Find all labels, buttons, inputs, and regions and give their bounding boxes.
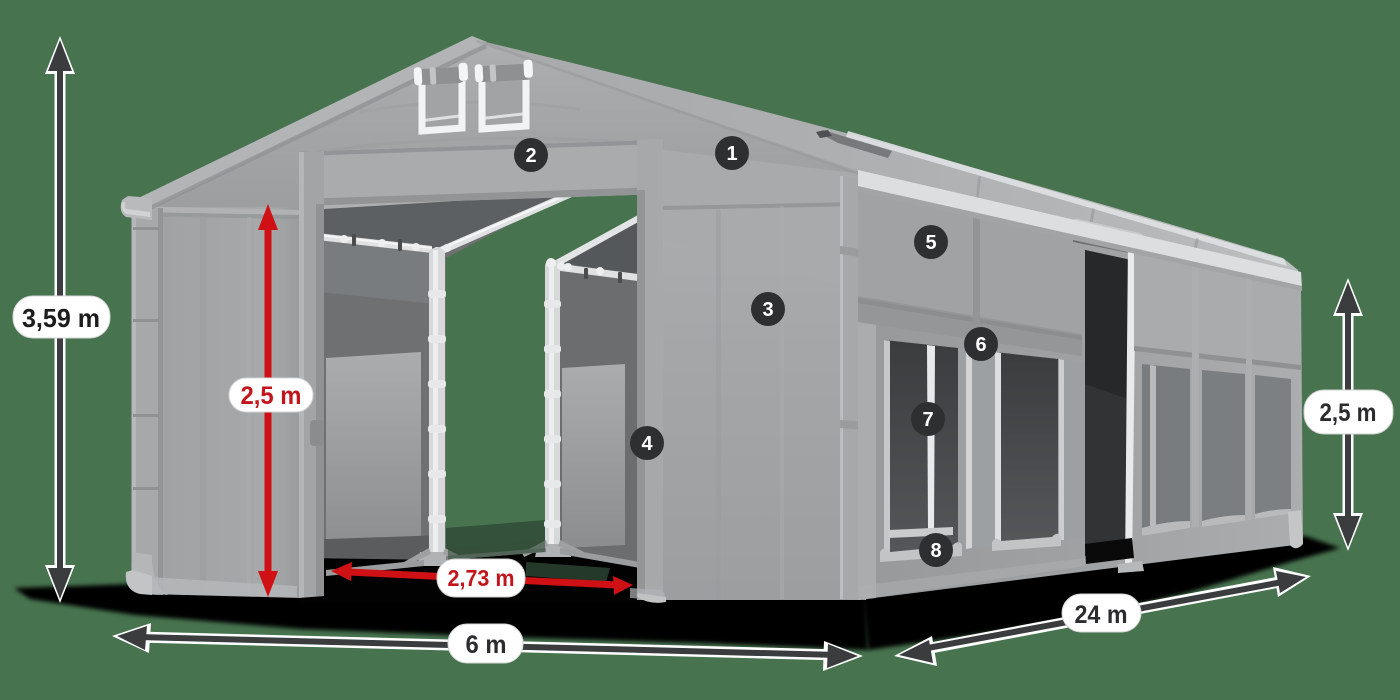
- svg-text:5: 5: [925, 232, 936, 254]
- svg-text:3,59 m: 3,59 m: [22, 303, 100, 333]
- svg-text:8: 8: [930, 540, 941, 562]
- svg-text:7: 7: [922, 409, 933, 431]
- svg-text:2,5 m: 2,5 m: [1320, 399, 1377, 427]
- svg-text:24 m: 24 m: [1075, 601, 1128, 629]
- svg-text:1: 1: [726, 143, 737, 165]
- svg-text:4: 4: [641, 433, 653, 455]
- svg-text:2,5 m: 2,5 m: [241, 382, 302, 410]
- svg-text:6: 6: [975, 334, 986, 356]
- svg-text:6 m: 6 m: [466, 631, 507, 659]
- svg-text:2,73 m: 2,73 m: [448, 565, 515, 591]
- svg-text:3: 3: [762, 299, 773, 321]
- svg-text:2: 2: [525, 145, 536, 167]
